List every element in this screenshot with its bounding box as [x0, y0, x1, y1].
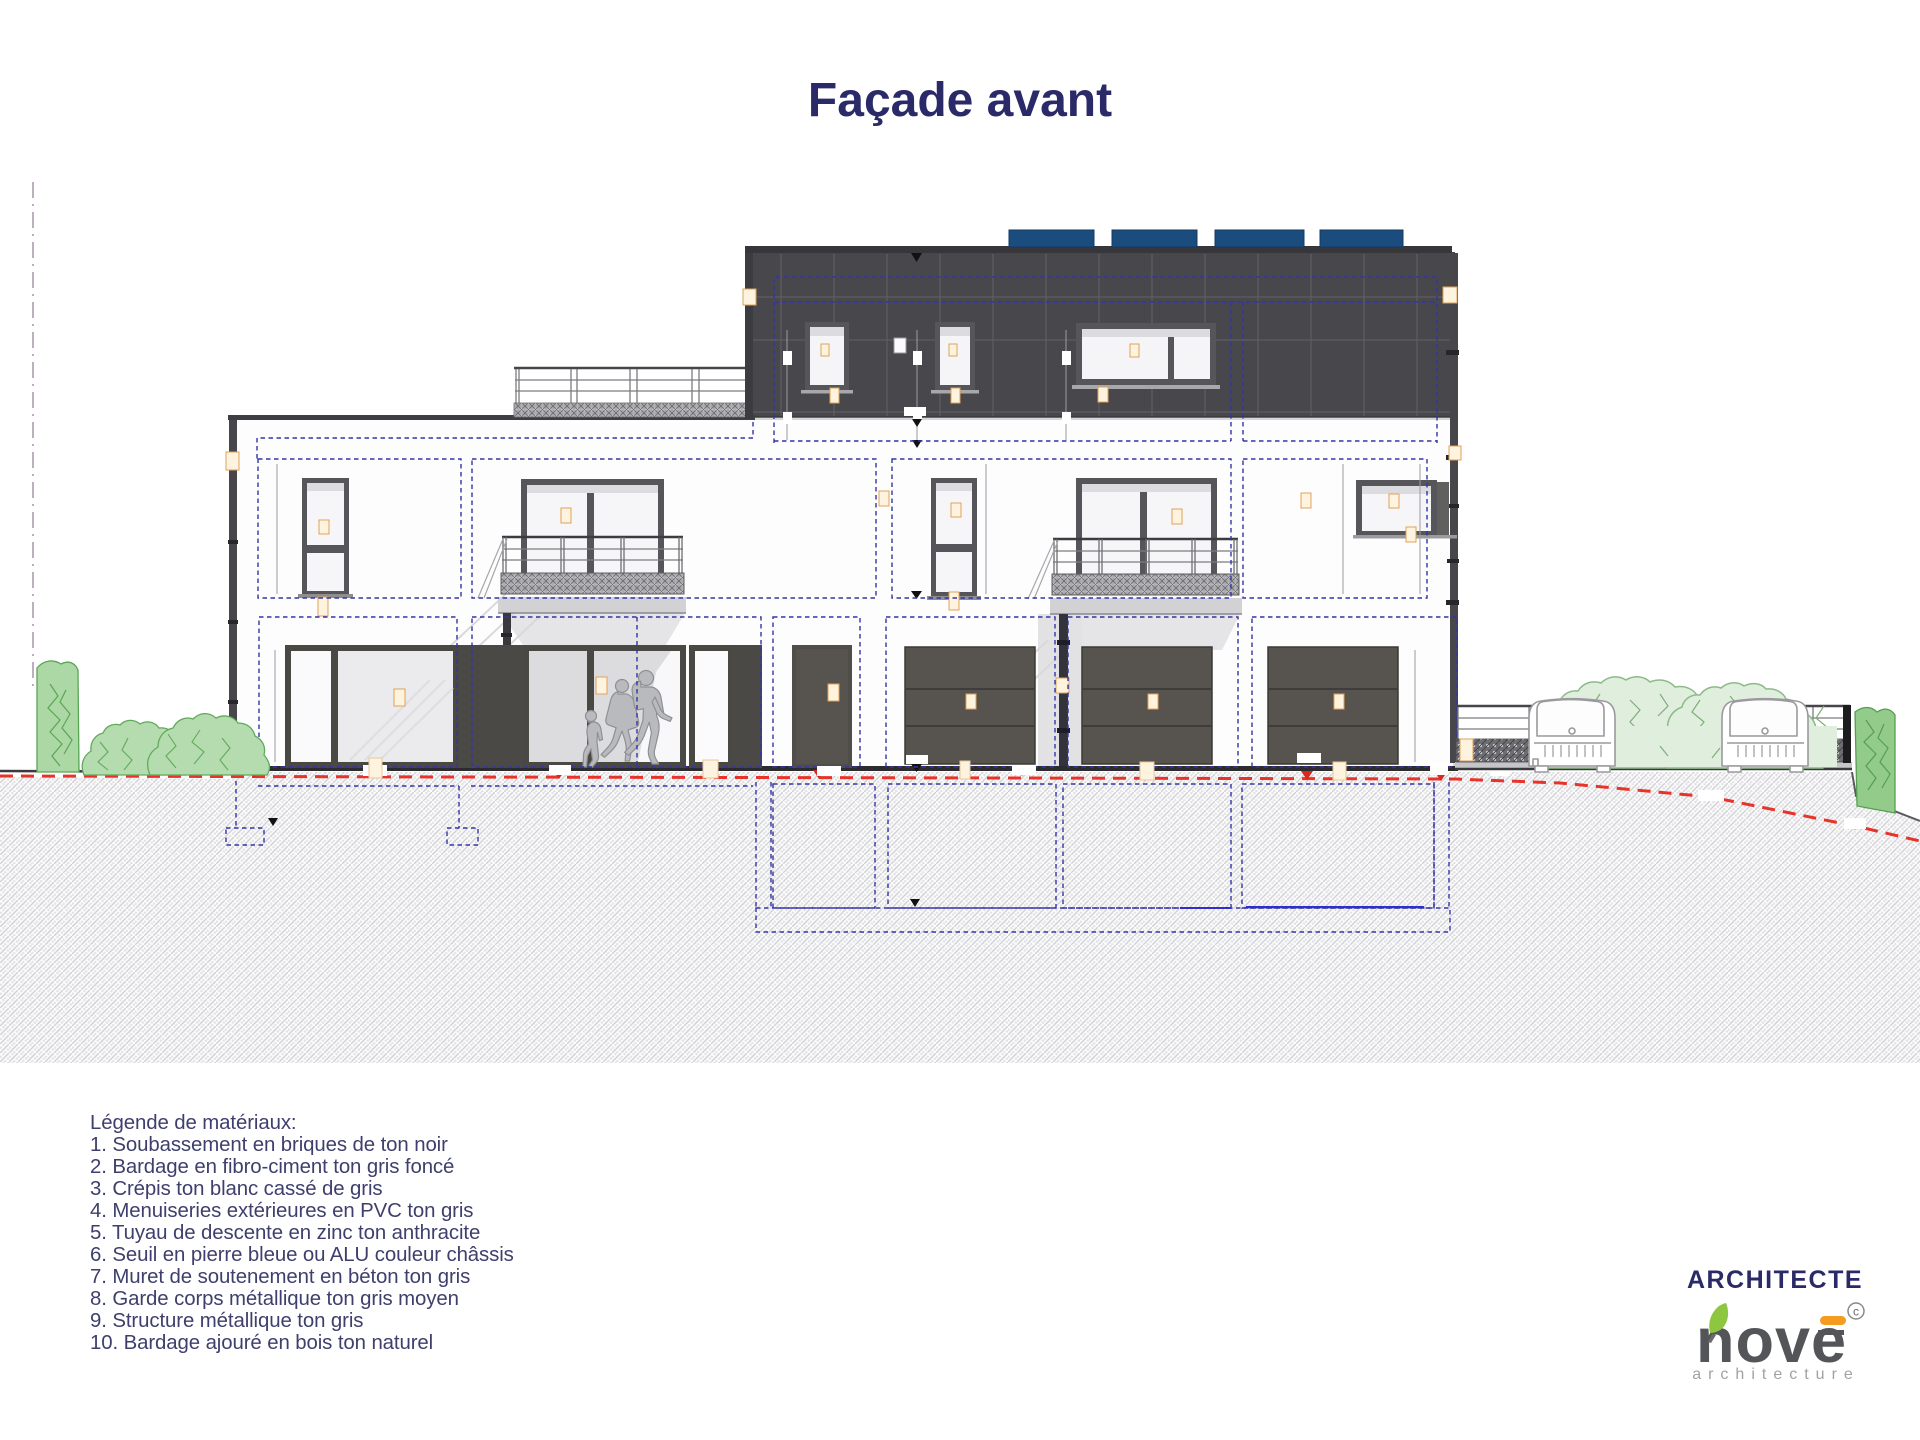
svg-text:4. Menuiseries extérieures en: 4. Menuiseries extérieures en PVC ton gr…: [90, 1200, 473, 1222]
svg-text:9. Structure métallique ton gr: 9. Structure métallique ton gris: [90, 1310, 363, 1332]
svg-text:3. Crépis ton blanc cassé de g: 3. Crépis ton blanc cassé de gris: [90, 1178, 383, 1200]
svg-text:Légende de matériaux:: Légende de matériaux:: [90, 1112, 297, 1134]
svg-text:2. Bardage en fibro-ciment ton: 2. Bardage en fibro-ciment ton gris fonc…: [90, 1156, 454, 1178]
svg-text:ARCHITECTE: ARCHITECTE: [1687, 1266, 1863, 1294]
svg-text:6. Seuil en pierre bleue ou AL: 6. Seuil en pierre bleue ou ALU couleur …: [90, 1244, 514, 1266]
svg-text:7. Muret de soutenement en bét: 7. Muret de soutenement en béton ton gri…: [90, 1266, 470, 1288]
svg-text:5. Tuyau de descente en zinc t: 5. Tuyau de descente en zinc ton anthrac…: [90, 1222, 480, 1244]
svg-text:Façade avant: Façade avant: [808, 74, 1112, 127]
svg-text:10. Bardage ajouré en bois ton: 10. Bardage ajouré en bois ton naturel: [90, 1332, 433, 1354]
svg-text:architecture: architecture: [1692, 1366, 1860, 1383]
svg-text:c: c: [1853, 1305, 1859, 1319]
svg-text:1. Soubassement en briques de: 1. Soubassement en briques de ton noir: [90, 1134, 448, 1156]
svg-text:8. Garde corps métallique ton: 8. Garde corps métallique ton gris moyen: [90, 1288, 459, 1310]
